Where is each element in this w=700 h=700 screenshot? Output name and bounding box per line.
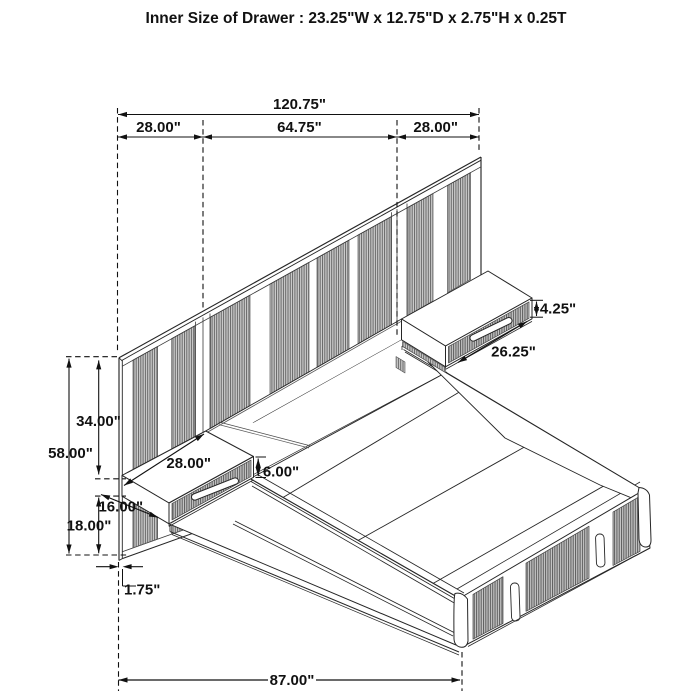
svg-text:6.00": 6.00" [263, 464, 299, 481]
svg-text:28.00": 28.00" [166, 455, 211, 472]
svg-text:1.75": 1.75" [124, 582, 160, 599]
svg-text:Inner Size of Drawer : 23.25"W: Inner Size of Drawer : 23.25"W x 12.75"D… [146, 10, 567, 27]
svg-text:28.00": 28.00" [136, 119, 181, 136]
svg-text:28.00": 28.00" [413, 119, 458, 136]
svg-text:58.00": 58.00" [48, 445, 93, 462]
svg-text:16.00": 16.00" [98, 499, 143, 516]
svg-text:4.25": 4.25" [540, 301, 576, 318]
svg-text:18.00": 18.00" [67, 518, 112, 535]
svg-text:120.75": 120.75" [273, 96, 326, 113]
svg-text:64.75": 64.75" [277, 119, 322, 136]
svg-text:26.25": 26.25" [491, 344, 536, 361]
svg-text:87.00": 87.00" [270, 672, 315, 689]
